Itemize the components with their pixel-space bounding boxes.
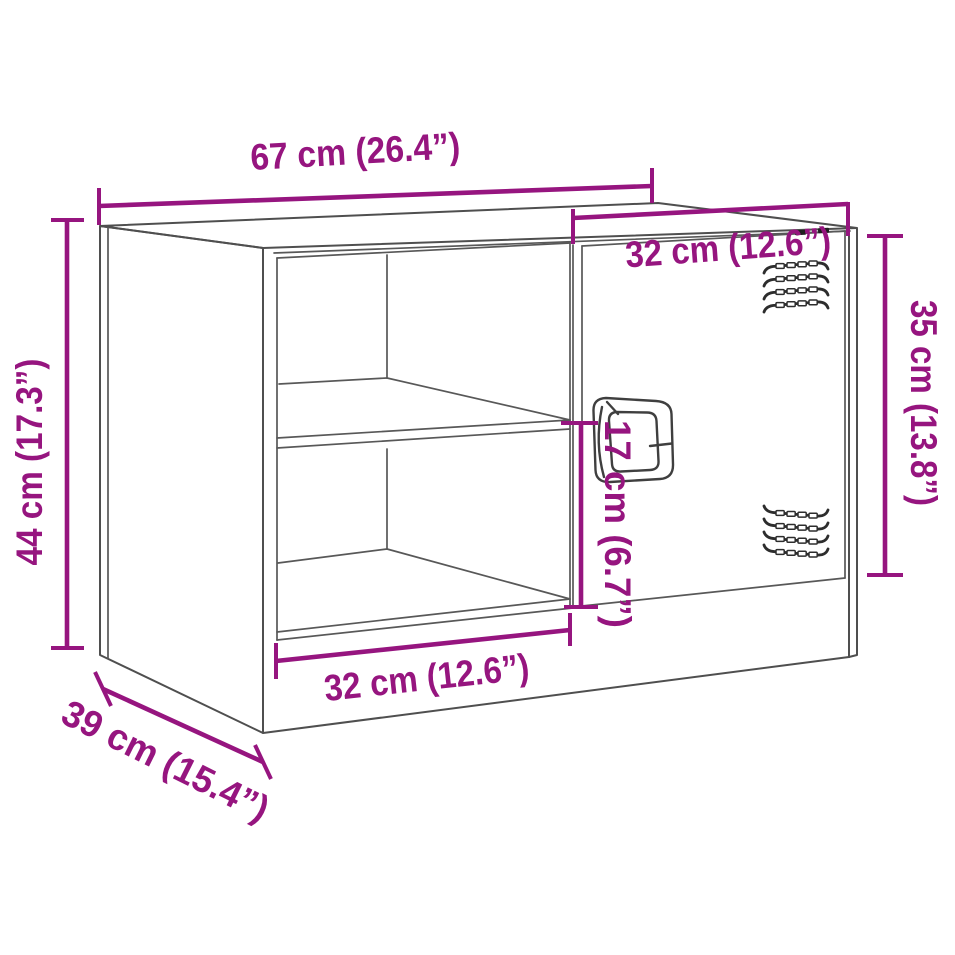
dim-line: [573, 204, 848, 218]
dim-label-opening-width: 32 cm (12.6”): [322, 646, 531, 709]
dim-total-height: 44 cm (17.3”): [9, 220, 84, 648]
dim-label-handle-height: 17 cm (6.7”): [597, 420, 638, 628]
middle-shelf: [277, 378, 570, 448]
dim-label-total-width: 67 cm (26.4”): [249, 125, 461, 178]
dim-label-total-height: 44 cm (17.3”): [9, 359, 50, 566]
open-compartment: [277, 243, 582, 640]
dim-tick-start: [95, 672, 111, 706]
dimension-diagram: 67 cm (26.4”) 32 cm (12.6”) 35 cm (13.8”…: [0, 0, 955, 955]
dim-line: [99, 186, 652, 206]
dim-tick-end: [255, 745, 271, 779]
cabinet-left-panel: [100, 226, 263, 733]
dim-label-depth: 39 cm (15.4”): [55, 692, 276, 830]
cabinet-drawing: 67 cm (26.4”) 32 cm (12.6”) 35 cm (13.8”…: [0, 0, 955, 955]
cabinet-right-outer-edge: [849, 229, 857, 657]
dim-depth: 39 cm (15.4”): [55, 672, 276, 830]
dim-label-door-height: 35 cm (13.8”): [903, 300, 944, 506]
vent-slots-bottom: [764, 506, 828, 557]
dim-door-height: 35 cm (13.8”): [867, 236, 944, 575]
dim-total-width: 67 cm (26.4”): [99, 125, 652, 225]
bottom-panel: [277, 549, 570, 632]
vent-slots-top: [764, 261, 828, 312]
